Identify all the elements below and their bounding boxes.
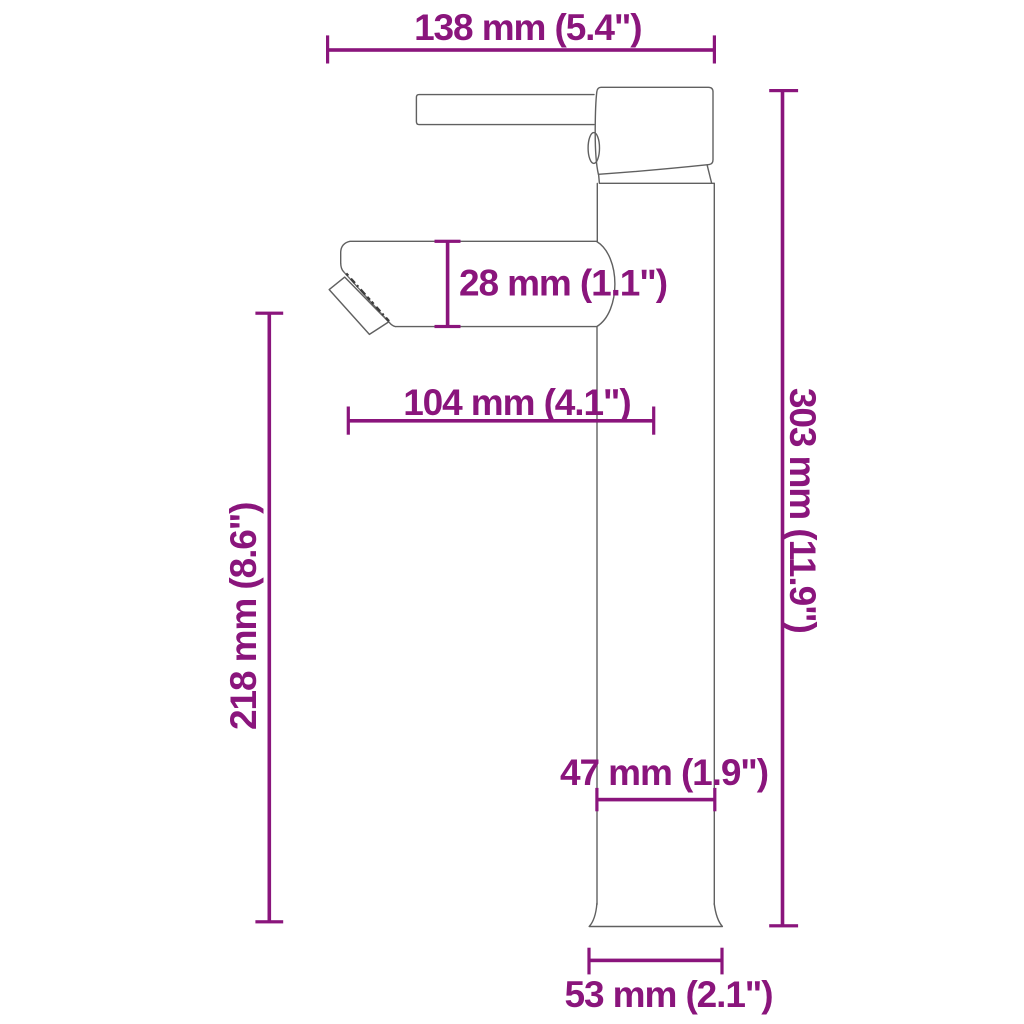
svg-text:53 mm (2.1"): 53 mm (2.1"): [565, 974, 773, 1015]
svg-text:47 mm (1.9"): 47 mm (1.9"): [560, 752, 768, 793]
svg-text:104 mm (4.1"): 104 mm (4.1"): [403, 382, 630, 423]
svg-text:28 mm (1.1"): 28 mm (1.1"): [459, 263, 667, 304]
svg-text:138 mm (5.4"): 138 mm (5.4"): [414, 7, 641, 48]
svg-text:218 mm (8.6"): 218 mm (8.6"): [223, 503, 264, 730]
svg-text:303 mm (11.9"): 303 mm (11.9"): [782, 388, 823, 633]
